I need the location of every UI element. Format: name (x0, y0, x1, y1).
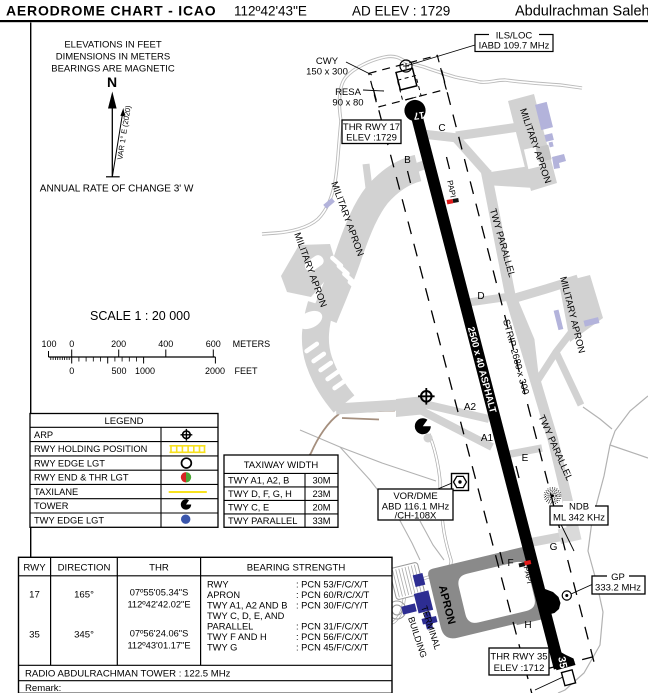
svg-text:0: 0 (69, 339, 74, 349)
svg-text:TAXIWAY WIDTH: TAXIWAY WIDTH (244, 460, 319, 471)
svg-text:TWY A1, A2 AND B: TWY A1, A2 AND B (207, 601, 287, 611)
svg-text:400: 400 (158, 339, 173, 349)
svg-text:1000: 1000 (135, 366, 155, 376)
svg-text:RWY EDGE LGT: RWY EDGE LGT (34, 458, 105, 468)
svg-text:PARALLEL: PARALLEL (207, 622, 253, 632)
svg-text:G: G (550, 542, 558, 553)
svg-text:E: E (522, 453, 529, 464)
svg-text:F: F (507, 558, 513, 569)
svg-text:DIRECTION: DIRECTION (58, 562, 111, 573)
svg-text:TWY A1, A2, B: TWY A1, A2, B (228, 476, 289, 486)
svg-text:B: B (404, 155, 411, 166)
svg-text:TWY C, E: TWY C, E (228, 503, 269, 513)
svg-text:LEGEND: LEGEND (104, 416, 143, 427)
svg-text:0: 0 (69, 366, 74, 376)
svg-text:TWY EDGE LGT: TWY EDGE LGT (34, 516, 104, 526)
svg-text:112º42'42.02"E: 112º42'42.02"E (127, 600, 190, 610)
svg-text:333.2 MHz: 333.2 MHz (595, 583, 641, 594)
svg-text:TWY G: TWY G (207, 643, 237, 653)
svg-text:Remark:: Remark: (25, 683, 61, 693)
svg-text:TWY D, F, G, H: TWY D, F, G, H (228, 489, 292, 499)
svg-text:112º42'43"E: 112º42'43"E (234, 4, 307, 19)
svg-text:D: D (477, 291, 484, 302)
svg-text:CWY: CWY (316, 56, 339, 67)
svg-text:ARP: ARP (34, 430, 53, 440)
svg-text:RWY: RWY (23, 562, 46, 573)
svg-text:RWY END & THR LGT: RWY END & THR LGT (34, 473, 129, 483)
svg-text:AD ELEV : 1729: AD ELEV : 1729 (352, 4, 450, 19)
svg-text:33M: 33M (312, 516, 330, 526)
svg-text:RESA: RESA (335, 87, 362, 98)
svg-text:C: C (438, 123, 445, 134)
svg-text:345°: 345° (74, 630, 94, 641)
svg-text:ML 342 KHz: ML 342 KHz (553, 513, 605, 524)
svg-text:90 x 80: 90 x 80 (332, 98, 363, 109)
svg-text:RWY HOLDING POSITION: RWY HOLDING POSITION (34, 444, 147, 454)
svg-text:112º43'01.17"E: 112º43'01.17"E (127, 641, 190, 651)
svg-text:TWY F AND H: TWY F AND H (207, 632, 267, 642)
svg-text:ELEVATIONS IN FEET: ELEVATIONS IN FEET (64, 40, 162, 51)
svg-text:200: 200 (111, 339, 126, 349)
svg-text:: PCN 45/F/C/X/T: : PCN 45/F/C/X/T (296, 643, 369, 653)
svg-text:THR: THR (149, 562, 169, 573)
svg-text:TWY C, D, E, AND: TWY C, D, E, AND (207, 611, 285, 621)
svg-text:A2: A2 (464, 402, 477, 413)
svg-text:DIMENSIONS IN METERS: DIMENSIONS IN METERS (56, 52, 171, 63)
svg-text:: PCN 53/F/C/X/T: : PCN 53/F/C/X/T (296, 580, 369, 590)
svg-text:150 x 300: 150 x 300 (306, 67, 348, 78)
svg-text:: PCN 60/R/C/X/T: : PCN 60/R/C/X/T (296, 590, 370, 600)
svg-text:AERODROME CHART - ICAO: AERODROME CHART - ICAO (6, 3, 216, 19)
svg-text:FEET: FEET (235, 366, 259, 376)
svg-text:2000: 2000 (205, 366, 225, 376)
svg-text:BEARING STRENGTH: BEARING STRENGTH (247, 562, 346, 573)
svg-text:BEARINGS ARE MAGNETIC: BEARINGS ARE MAGNETIC (51, 64, 175, 75)
svg-text:NDB: NDB (569, 502, 589, 513)
svg-text:ANNUAL RATE OF CHANGE 3' W: ANNUAL RATE OF CHANGE 3' W (40, 184, 194, 195)
svg-text:07º56'24.06"S: 07º56'24.06"S (130, 629, 189, 639)
svg-text:GP: GP (611, 572, 625, 583)
svg-text:RADIO ABDULRACHMAN TOWER : 122: RADIO ABDULRACHMAN TOWER : 122.5 MHz (25, 669, 231, 680)
svg-text:: PCN 30/F/C/Y/T: : PCN 30/F/C/Y/T (296, 601, 369, 611)
svg-text:/CH-108X: /CH-108X (395, 511, 437, 522)
svg-text:THR RWY 35: THR RWY 35 (490, 652, 547, 663)
svg-text:23M: 23M (312, 489, 330, 499)
svg-text:: PCN 56/F/C/X/T: : PCN 56/F/C/X/T (296, 632, 369, 642)
svg-text:500: 500 (111, 366, 126, 376)
svg-text:TOWER: TOWER (34, 501, 69, 511)
svg-text:07º55'05.34"S: 07º55'05.34"S (130, 588, 189, 598)
svg-text:100: 100 (41, 339, 56, 349)
svg-text:20M: 20M (312, 503, 330, 513)
svg-text:600: 600 (206, 339, 221, 349)
svg-text:165°: 165° (74, 590, 94, 601)
svg-text:TWY PARALLEL: TWY PARALLEL (228, 516, 297, 526)
svg-text:APRON: APRON (207, 590, 240, 600)
svg-text:Abdulrachman Saleh: Abdulrachman Saleh (515, 4, 648, 20)
svg-text:ELEV :1729: ELEV :1729 (346, 133, 397, 144)
svg-text:35: 35 (29, 630, 40, 641)
svg-text:A1: A1 (481, 433, 494, 444)
svg-text:IABD 109.7 MHz: IABD 109.7 MHz (479, 41, 550, 52)
svg-text:N: N (107, 74, 117, 90)
svg-text:17: 17 (29, 590, 40, 601)
svg-text:THR RWY 17: THR RWY 17 (343, 122, 400, 133)
svg-text:METERS: METERS (233, 339, 271, 349)
svg-text:ELEV :1712: ELEV :1712 (494, 663, 545, 674)
svg-text:17: 17 (412, 109, 425, 122)
svg-text:: PCN 31/F/C/X/T: : PCN 31/F/C/X/T (296, 622, 369, 632)
svg-text:RWY: RWY (207, 580, 229, 590)
svg-text:30M: 30M (312, 476, 330, 486)
svg-text:TAXILANE: TAXILANE (34, 487, 78, 497)
svg-text:SCALE 1 : 20 000: SCALE 1 : 20 000 (90, 309, 190, 323)
svg-text:H: H (524, 620, 531, 631)
svg-text:VOR/DME: VOR/DME (393, 491, 437, 502)
